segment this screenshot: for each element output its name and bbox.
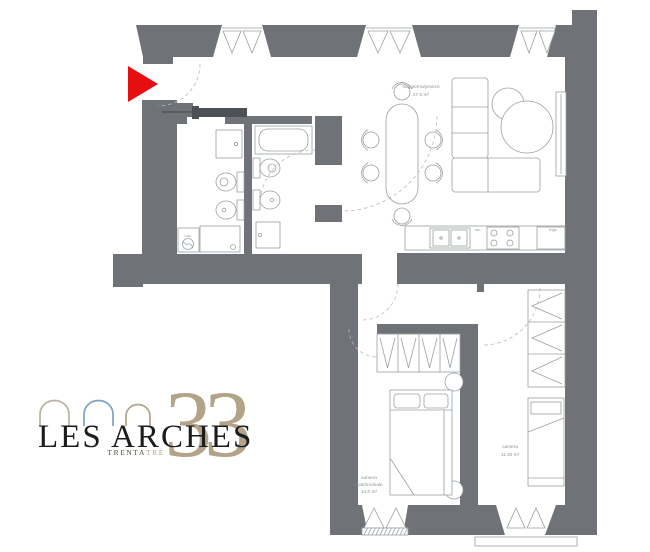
hall-door-arc	[362, 284, 398, 320]
dining-chair	[362, 130, 379, 150]
wall-top-left	[136, 25, 222, 57]
sink	[256, 222, 280, 248]
logo-subtitle-dark: TRENTA	[107, 448, 146, 457]
living-room-label: soggiorno/pranzo	[402, 84, 439, 90]
master-bedroom-area: 14.0 m²	[361, 489, 378, 495]
wall-bottom-right-corner	[545, 505, 597, 535]
master-bedroom-furniture	[377, 334, 463, 499]
living-room-area: 27.0 m²	[413, 92, 430, 98]
wall-left-outer	[142, 100, 177, 254]
sofa-chaise	[452, 158, 540, 192]
sliding-door-panel	[197, 108, 247, 117]
wall-bedroom2-door-stub	[477, 284, 484, 292]
washing-machine	[178, 228, 199, 252]
dining-chair	[425, 163, 442, 183]
entry-door-arc	[158, 64, 200, 106]
dining-chair	[362, 163, 379, 183]
toilet-bowl	[216, 173, 236, 191]
balcony-outline	[475, 537, 577, 546]
wall-mid-band-right	[397, 253, 567, 284]
dishwasher-label: lav.	[475, 228, 481, 232]
washer-label: Lav.	[185, 234, 192, 238]
window-pane	[223, 31, 241, 53]
single-bed	[528, 398, 564, 486]
shower-tray	[200, 226, 240, 252]
wall-bathrooms-top	[225, 116, 312, 124]
window-pane	[386, 508, 406, 528]
wall-living-left-lower	[315, 205, 342, 222]
wall-bedroom1-top	[377, 324, 478, 334]
sink	[216, 130, 242, 158]
bidet-tank	[237, 200, 244, 220]
bedside-stool	[445, 373, 463, 391]
wall-bottom-mid	[403, 505, 460, 535]
dining-chair	[425, 130, 442, 150]
toilet-tank	[237, 172, 244, 192]
fridge-label: frigo	[549, 228, 556, 232]
wall-top-right-mid	[412, 25, 519, 57]
window-pane	[243, 31, 261, 53]
logo: 33 LES ARCHES TRENTA TRÉ	[38, 371, 253, 477]
wall-mid-band-left	[113, 254, 362, 284]
wall-mid-band-left-block	[113, 254, 143, 287]
wardrobe	[377, 334, 460, 372]
wall-top-right-step	[572, 10, 597, 25]
entrance-arrow	[128, 66, 158, 102]
sofa-group	[452, 78, 566, 192]
window-pane	[527, 508, 545, 528]
wall-living-left-upper	[315, 116, 342, 165]
second-bedroom-furniture	[528, 290, 565, 486]
window-pane	[390, 31, 410, 53]
window-pane	[507, 508, 525, 528]
window-hatched-sill	[362, 528, 408, 535]
wall-bedroom1-left	[330, 284, 358, 535]
wall-entry-nub	[175, 103, 193, 117]
window-pane	[364, 508, 384, 528]
bathroom2-fixtures	[253, 126, 312, 248]
second-bedroom-label: camera	[502, 444, 518, 450]
bidet-tank	[253, 190, 260, 210]
kitchen-fixtures	[405, 226, 565, 250]
floor-plan-canvas: soggiorno/pranzo 27.0 m² camera matrimon…	[0, 0, 650, 552]
toilet-bowl	[260, 159, 280, 177]
window-pane	[368, 31, 388, 53]
wall-between-bathrooms	[244, 116, 252, 254]
coffee-table-large	[501, 101, 553, 153]
wall-entry-lintel	[143, 57, 173, 64]
master-bedroom-label1: camera	[361, 475, 377, 481]
floor-plan-page: soggiorno/pranzo 27.0 m² camera matrimon…	[0, 0, 650, 552]
dining-table	[386, 104, 418, 204]
double-bed	[390, 390, 452, 495]
wall-bathrooms-top-nub	[177, 116, 187, 124]
wall-top-mid	[262, 25, 366, 57]
wall-right	[565, 25, 597, 505]
sofa-vertical	[452, 78, 488, 158]
kitchen-counter	[405, 226, 565, 250]
window-pane	[521, 31, 537, 53]
logo-subtitle-accent: TRÉ	[146, 447, 165, 457]
toilet-tank	[253, 158, 260, 178]
wall-between-bedrooms	[460, 330, 478, 535]
dining-chair	[392, 208, 412, 225]
second-bedroom-area: 11.30 m²	[501, 452, 520, 458]
master-bedroom-label2: matrimoniale	[355, 482, 383, 488]
dining-set	[362, 83, 443, 226]
